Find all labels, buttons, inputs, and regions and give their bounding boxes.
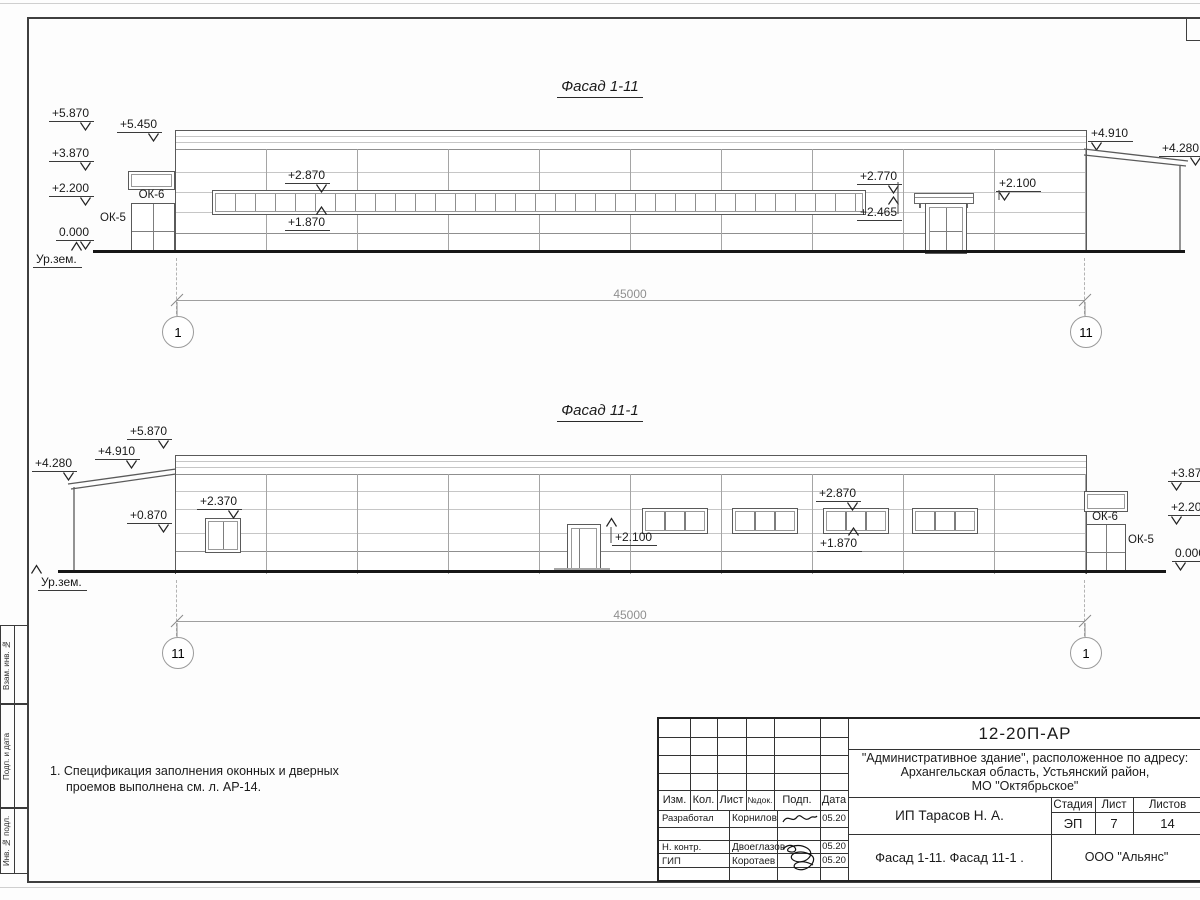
note-line-2: проемов выполнена см. л. АР-14. — [66, 780, 261, 794]
side-strip-cell: Инв. № подл. — [0, 807, 28, 874]
tb-date: 05.20 — [820, 810, 848, 827]
side-strip-cell: Взам. инв. № — [0, 625, 28, 705]
tb-client: ИП Тарасов Н. А. — [848, 797, 1051, 834]
side-strip-label: Инв. № подл. — [2, 810, 13, 871]
tb-col-izm: Изм. — [659, 792, 690, 808]
tb-line — [848, 749, 1200, 750]
tb-sheet-title: Фасад 1-11. Фасад 11-1 . — [848, 834, 1051, 880]
signature — [779, 811, 819, 827]
drawing-sheet: Фасад 1-11 ОК-6 ОК-5 +5.870 — [0, 0, 1200, 900]
tb-col-data: Дата — [820, 792, 848, 808]
side-strip-divider — [14, 704, 15, 808]
tb-col-list: Лист — [717, 792, 746, 808]
tb-col-ndok: №док. — [746, 792, 774, 808]
side-strip-divider — [14, 626, 15, 704]
tb-date: 05.20 — [820, 840, 848, 853]
tb-col-kol: Кол. — [690, 792, 717, 808]
tb-line — [659, 790, 848, 791]
tb-name: Коротаев — [732, 856, 775, 867]
side-strip-divider — [14, 808, 15, 873]
tb-doc-number: 12-20П-АР — [848, 721, 1200, 747]
side-strip-cell: Подп. и дата — [0, 703, 28, 809]
tb-project-line1: "Административное здание", расположенное… — [848, 751, 1200, 765]
tb-role: Разработал — [662, 813, 714, 824]
side-strip-label: Подп. и дата — [2, 706, 13, 806]
tb-name: Корнилов — [732, 813, 777, 824]
tb-stage-value: ЭП — [1051, 814, 1095, 832]
tb-project-line2: Архангельская область, Устьянский район, — [848, 765, 1200, 779]
note-line-1: 1. Спецификация заполнения оконных и две… — [50, 764, 339, 778]
tb-role: Н. контр. — [662, 842, 701, 853]
tb-stage-label: Стадия — [1051, 798, 1095, 812]
tb-role: ГИП — [662, 856, 681, 867]
tb-line — [659, 773, 848, 774]
tb-line — [659, 737, 848, 738]
signature — [777, 839, 821, 881]
tb-list-label: Лист — [1095, 798, 1133, 812]
tb-col-podp: Подп. — [774, 792, 820, 808]
side-strip-label: Взам. инв. № — [2, 628, 13, 702]
tb-project-line3: МО "Октябрьское" — [848, 779, 1200, 793]
tb-line — [1051, 812, 1200, 813]
title-block: Изм. Кол. Лист №док. Подп. Дата Разработ… — [657, 717, 1200, 882]
tb-line — [659, 755, 848, 756]
tb-line — [659, 827, 848, 828]
tb-line — [729, 810, 730, 880]
tb-org: ООО "Альянс" — [1051, 834, 1200, 880]
tb-sheets-total: 14 — [1133, 814, 1200, 832]
tb-date: 05.20 — [820, 853, 848, 867]
tb-listov-label: Листов — [1133, 798, 1200, 812]
tb-sheet-no: 7 — [1095, 814, 1133, 832]
